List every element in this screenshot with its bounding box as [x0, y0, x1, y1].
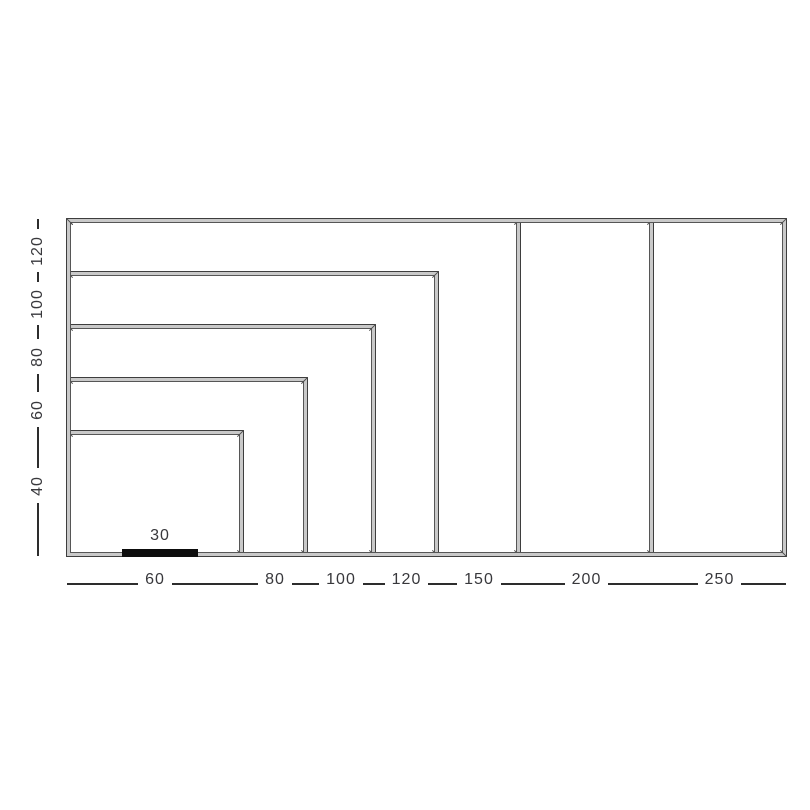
left-axis-label-100: 100: [29, 289, 47, 319]
left-axis-label-80: 80: [29, 347, 47, 367]
axis-dash: [428, 583, 457, 585]
bottom-axis-label-100: 100: [326, 571, 356, 589]
bottom-axis-label-60: 60: [145, 571, 165, 589]
axis-dash: [741, 583, 786, 585]
scale-bar-label: 30: [150, 527, 170, 545]
axis-dash: [172, 583, 258, 585]
axis-dash: [67, 583, 138, 585]
axis-dash: [37, 503, 39, 556]
mitre-corner-mark: [780, 550, 787, 557]
left-axis-label-40: 40: [29, 476, 47, 496]
axis-dash: [608, 583, 697, 585]
mitre-corner-mark: [780, 218, 787, 225]
mitre-corner-mark: [66, 218, 73, 225]
axis-dash: [292, 583, 319, 585]
axis-dash: [37, 272, 39, 281]
scale-bar: [122, 549, 198, 557]
axis-dash: [37, 325, 39, 339]
size-rect-250x120: [67, 219, 786, 556]
bottom-axis-label-150: 150: [464, 571, 494, 589]
bottom-axis-label-200: 200: [572, 571, 602, 589]
bottom-axis-label-120: 120: [392, 571, 422, 589]
left-axis-label-60: 60: [29, 400, 47, 420]
axis-dash: [37, 219, 39, 229]
bottom-axis-label-250: 250: [705, 571, 735, 589]
axis-dash: [363, 583, 385, 585]
left-axis-label-120: 120: [29, 236, 47, 266]
axis-dash: [37, 374, 39, 393]
axis-dash: [37, 427, 39, 469]
bottom-axis-label-80: 80: [265, 571, 285, 589]
size-diagram-page: 120100806040 6080100120150200250 30: [0, 0, 810, 810]
size-diagram: 120100806040 6080100120150200250 30: [0, 0, 810, 810]
axis-dash: [501, 583, 565, 585]
